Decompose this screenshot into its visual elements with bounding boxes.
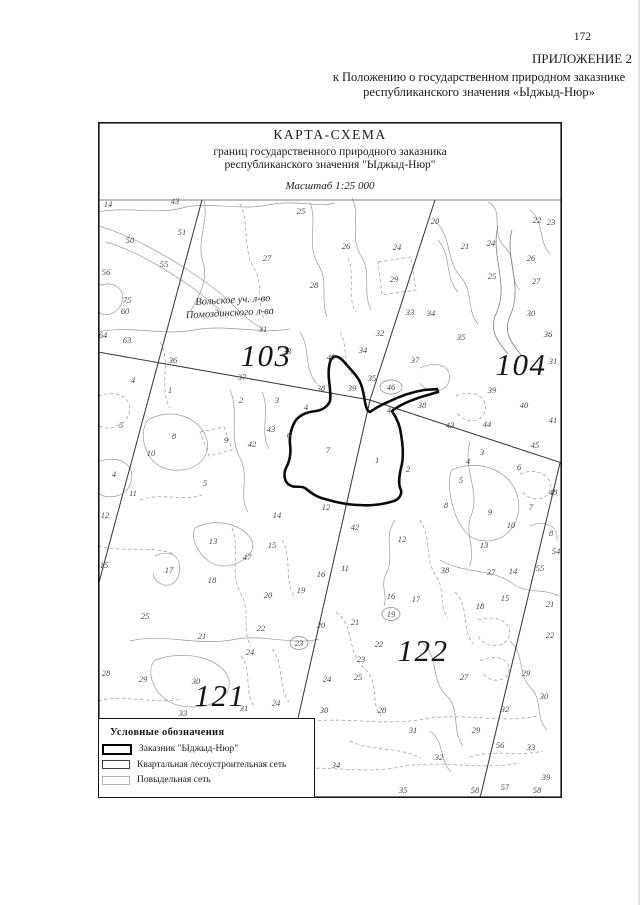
parcel-number: 5 xyxy=(119,420,123,430)
parcel-number: 31 xyxy=(408,725,418,735)
parcel-number: 31 xyxy=(258,324,268,334)
appendix-title: ПРИЛОЖЕНИЕ 2 xyxy=(326,52,632,67)
parcel-number: 12 xyxy=(322,502,331,512)
appendix-subtitle-2: республиканского значения «Ыджыд-Нюр» xyxy=(326,85,632,100)
parcel-number: 41 xyxy=(549,415,558,425)
parcel-number: 43 xyxy=(446,420,455,430)
parcel-number: 55 xyxy=(160,259,169,269)
parcel-number: 27 xyxy=(532,276,541,286)
map-frame: Вольское уч. л-во Помоздинского л-ва 103… xyxy=(98,122,562,798)
parcel-number: 7 xyxy=(326,445,331,455)
parcel-number: 3 xyxy=(479,447,484,457)
parcel-number: 34 xyxy=(358,345,368,355)
parcel-number: 2 xyxy=(239,395,244,405)
parcel-number: 14 xyxy=(273,510,282,520)
parcel-number: 33 xyxy=(178,708,188,718)
map-title-block: КАРТА-СХЕМА границ государственного прир… xyxy=(98,127,562,192)
parcel-number: 12 xyxy=(398,534,407,544)
parcel-number: 32 xyxy=(434,752,444,762)
map-scale: Масштаб 1:25 000 xyxy=(98,180,562,192)
legend-item-label: Квартальная лесоустроительная сеть xyxy=(137,760,286,770)
parcel-number: 57 xyxy=(501,782,510,792)
parcel-number: 15 xyxy=(268,540,277,550)
parcel-number: 32 xyxy=(375,328,385,338)
parcel-number: 1 xyxy=(375,455,379,465)
parcel-number: 27 xyxy=(460,672,469,682)
parcel-number: 20 xyxy=(431,216,440,226)
parcel-number: 42 xyxy=(248,439,257,449)
parcel-number: 56 xyxy=(496,740,505,750)
parcel-number: 42 xyxy=(351,522,360,532)
parcel-number: 28 xyxy=(102,668,111,678)
legend: Условные обозначения Заказник "Ыджыд-Нюр… xyxy=(98,718,315,798)
map-svg: Вольское уч. л-во Помоздинского л-ва 103… xyxy=(98,122,562,798)
parcel-number: 4 xyxy=(131,375,136,385)
parcel-number: 17 xyxy=(412,594,421,604)
reserve-boundary-swatch xyxy=(102,744,132,755)
parcel-number: 21 xyxy=(198,631,207,641)
area-label-line2: Помоздинского л-ва xyxy=(185,306,275,322)
parcel-number: 28 xyxy=(378,705,387,715)
page: 172 ПРИЛОЖЕНИЕ 2 к Положению о государст… xyxy=(0,0,640,905)
parcel-number: 22 xyxy=(533,215,542,225)
parcel-number: 35 xyxy=(367,373,377,383)
parcel-number: 47 xyxy=(243,552,252,562)
parcel-number: 25 xyxy=(141,611,150,621)
parcel-number: 44 xyxy=(483,419,492,429)
parcel-number: 4 xyxy=(466,456,471,466)
parcel-number: 30 xyxy=(526,308,536,318)
parcel-number: 13 xyxy=(480,540,489,550)
parcel-number: 20 xyxy=(317,620,326,630)
parcel-number: 19 xyxy=(387,609,396,619)
parcel-number: 5 xyxy=(203,478,207,488)
parcel-number: 29 xyxy=(139,674,148,684)
parcel-number: 37 xyxy=(410,355,420,365)
parcel-number: 21 xyxy=(546,599,555,609)
parcel-number: 33 xyxy=(282,346,292,356)
parcel-number: 30 xyxy=(319,705,329,715)
parcel-number: 45 xyxy=(531,440,540,450)
legend-item-reserve: Заказник "Ыджыд-Нюр" xyxy=(102,743,314,755)
parcel-number: 39 xyxy=(347,383,357,393)
map-title: КАРТА-СХЕМА xyxy=(98,127,562,143)
parcel-number: 23 xyxy=(547,217,556,227)
parcel-number: 20 xyxy=(264,590,273,600)
reserve-boundary xyxy=(285,356,439,505)
parcel-number: 8 xyxy=(549,528,554,538)
legend-item-parcel-net: Повыдельная сеть xyxy=(102,774,314,786)
parcel-number: 26 xyxy=(527,253,536,263)
parcel-number: 3 xyxy=(274,395,279,405)
parcel-number: 58 xyxy=(471,785,480,795)
parcel-labels: 1443255150555627756064632022232624212429… xyxy=(99,196,561,795)
parcel-number: 15 xyxy=(100,560,109,570)
parcel-number: 10 xyxy=(507,520,516,530)
parcel-number: 36 xyxy=(168,355,178,365)
parcel-number: 26 xyxy=(342,241,351,251)
parcel-number: 24 xyxy=(246,647,255,657)
parcel-number: 34 xyxy=(331,760,341,770)
parcel-number: 23 xyxy=(295,638,304,648)
quarter-number: 121 xyxy=(195,678,246,713)
parcel-number: 19 xyxy=(297,585,306,595)
parcel-number: 24 xyxy=(393,242,402,252)
parcel-number: 13 xyxy=(209,536,218,546)
appendix-subtitle-1: к Положению о государственном природном … xyxy=(326,70,632,85)
quarter-net-swatch xyxy=(102,760,130,769)
legend-item-label: Заказник "Ыджыд-Нюр" xyxy=(139,744,238,754)
parcel-number: 33 xyxy=(405,307,415,317)
legend-item-label: Повыдельная сеть xyxy=(137,775,211,785)
parcel-number: 25 xyxy=(488,271,497,281)
parcel-number: 15 xyxy=(501,593,510,603)
parcel-number: 22 xyxy=(546,630,555,640)
parcel-number: 1 xyxy=(168,385,172,395)
parcel-number: 10 xyxy=(147,448,156,458)
parcel-number: 36 xyxy=(543,329,553,339)
parcel-number: 43 xyxy=(267,424,276,434)
parcel-number: 5 xyxy=(459,475,463,485)
parcel-number: 11 xyxy=(129,488,137,498)
map-subtitle-2: республиканского значения "Ыджыд-Нюр" xyxy=(98,159,562,171)
parcel-number: 21 xyxy=(351,617,360,627)
parcel-number: 16 xyxy=(387,591,396,601)
parcel-number: 48 xyxy=(549,487,558,497)
parcel-number: 30 xyxy=(191,676,201,686)
parcel-number: 22 xyxy=(375,639,384,649)
parcel-number: 31 xyxy=(239,703,249,713)
parcel-number: 4 xyxy=(112,469,117,479)
parcel-number: 4 xyxy=(304,402,309,412)
parcel-number: 54 xyxy=(552,546,561,556)
parcel-number: 8 xyxy=(444,500,449,510)
parcel-number: 9 xyxy=(224,435,229,445)
map-border xyxy=(99,123,561,797)
parcel-number: 37 xyxy=(486,567,496,577)
parcel-number: 50 xyxy=(126,235,135,245)
parcel-number: 16 xyxy=(317,569,326,579)
parcel-number: 14 xyxy=(509,566,518,576)
parcel-number: 75 xyxy=(123,295,132,305)
parcel-number: 21 xyxy=(461,241,470,251)
parcel-number: 40 xyxy=(520,400,529,410)
page-number: 172 xyxy=(574,31,591,43)
parcel-number: 35 xyxy=(456,332,466,342)
quarter-lines xyxy=(98,200,562,798)
parcel-number: 39 xyxy=(487,385,497,395)
parcel-number: 18 xyxy=(208,575,217,585)
parcel-number: 22 xyxy=(257,623,266,633)
parcel-number: 37 xyxy=(237,372,247,382)
parcel-number: 58 xyxy=(533,785,542,795)
parcel-number: 34 xyxy=(426,308,436,318)
quarter-number: 104 xyxy=(496,347,547,382)
parcel-number: 43 xyxy=(171,196,180,206)
parcel-network xyxy=(98,198,559,772)
parcel-number: 39 xyxy=(541,772,551,782)
parcel-number: 27 xyxy=(263,253,272,263)
parcel-number: 11 xyxy=(341,563,349,573)
area-label: Вольское уч. л-во Помоздинского л-ва xyxy=(185,293,275,321)
parcel-number: 32 xyxy=(500,704,510,714)
parcel-number: 29 xyxy=(390,274,399,284)
parcel-number: 24 xyxy=(272,698,281,708)
parcel-number: 8 xyxy=(172,431,177,441)
parcel-number: 25 xyxy=(297,206,306,216)
parcel-number: 30 xyxy=(539,691,549,701)
parcel-number: 38 xyxy=(417,400,427,410)
parcel-number: 55 xyxy=(536,563,545,573)
quarter-number: 122 xyxy=(398,633,449,668)
parcel-number: 38 xyxy=(316,383,326,393)
parcel-number: 38 xyxy=(440,565,450,575)
parcel-number: 46 xyxy=(387,382,396,392)
parcel-number: 56 xyxy=(102,267,111,277)
parcel-number: 63 xyxy=(123,335,132,345)
parcel-number: 24 xyxy=(487,238,496,248)
parcel-number: 18 xyxy=(476,601,485,611)
parcel-number: 60 xyxy=(121,306,130,316)
legend-title: Условные обозначения xyxy=(110,727,314,738)
legend-item-quarter-net: Квартальная лесоустроительная сеть xyxy=(102,759,314,771)
parcel-number: 25 xyxy=(354,672,363,682)
parcel-number: 2 xyxy=(406,464,411,474)
parcel-number: 24 xyxy=(323,674,332,684)
parcel-number: 6 xyxy=(517,462,522,472)
parcel-number: 7 xyxy=(529,502,534,512)
appendix-header: ПРИЛОЖЕНИЕ 2 к Положению о государственн… xyxy=(326,52,632,99)
parcel-number: 40 xyxy=(327,352,336,362)
parcel-number: 29 xyxy=(472,725,481,735)
parcel-number: 33 xyxy=(526,742,536,752)
parcel-number: 35 xyxy=(398,785,408,795)
parcel-number: 9 xyxy=(488,507,493,517)
parcel-number: 23 xyxy=(357,654,366,664)
parcel-number: 12 xyxy=(101,510,110,520)
parcel-number: 31 xyxy=(548,356,558,366)
parcel-net-swatch xyxy=(102,776,130,785)
map-subtitle-1: границ государственного природного заказ… xyxy=(98,146,562,158)
parcel-number: 14 xyxy=(104,199,113,209)
parcel-number: 29 xyxy=(522,668,531,678)
parcel-number: 42 xyxy=(387,405,396,415)
parcel-number: 28 xyxy=(310,280,319,290)
parcel-number: 17 xyxy=(165,565,174,575)
parcel-number: 64 xyxy=(99,330,108,340)
parcel-number: 51 xyxy=(178,227,187,237)
